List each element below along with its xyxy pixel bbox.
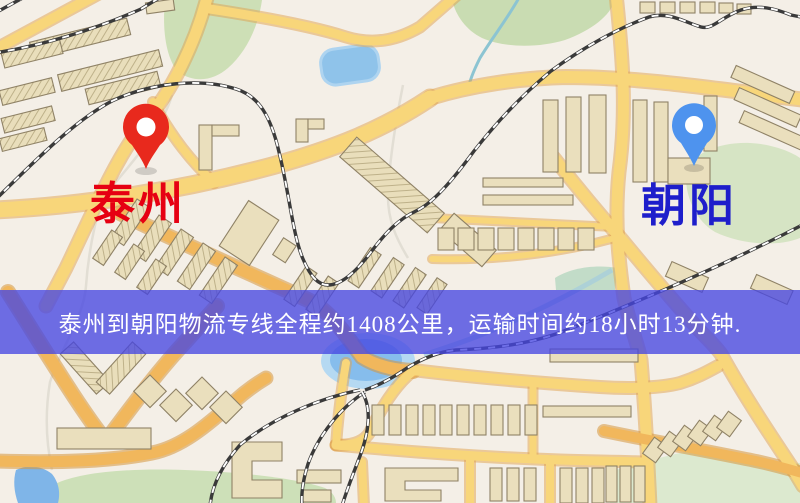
origin-label: 泰州 (90, 179, 186, 229)
route-info-banner: 泰州到朝阳物流专线全程约1408公里，运输时间约18小时13分钟. (0, 290, 800, 354)
route-info-text: 泰州到朝阳物流专线全程约1408公里，运输时间约18小时13分钟. (59, 305, 742, 339)
map-screenshot: 泰州 朝阳 泰州到朝阳物流专线全程约1408公里，运输时间约18小时13分钟. (0, 0, 800, 503)
map-canvas[interactable]: 泰州 朝阳 (0, 0, 800, 503)
destination-label: 朝阳 (641, 181, 737, 231)
